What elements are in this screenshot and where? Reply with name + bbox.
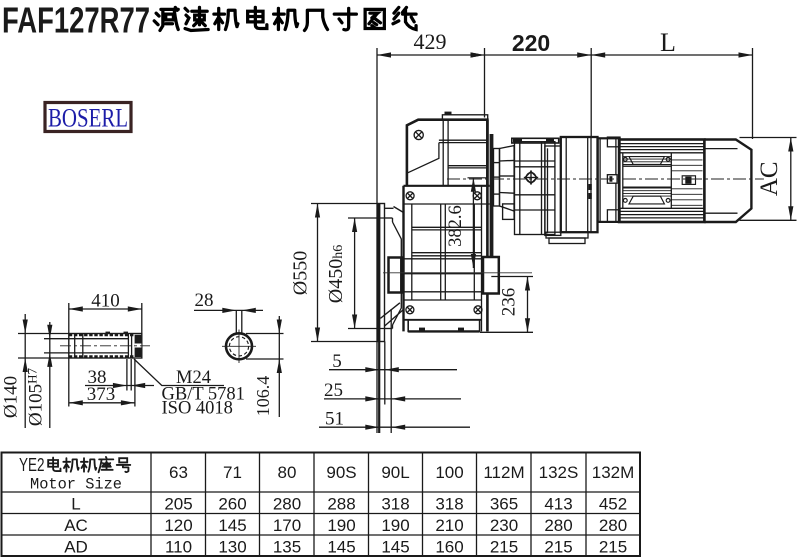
svg-text:130: 130 xyxy=(218,538,246,557)
svg-text:205: 205 xyxy=(164,495,192,514)
svg-text:132M: 132M xyxy=(592,463,635,482)
svg-text:280: 280 xyxy=(599,516,627,535)
svg-text:AD: AD xyxy=(64,538,88,557)
svg-text:145: 145 xyxy=(381,538,409,557)
svg-text:YE2: YE2 xyxy=(19,454,45,475)
svg-text:51: 51 xyxy=(325,409,344,430)
svg-text:220: 220 xyxy=(512,30,550,56)
svg-text:90S: 90S xyxy=(326,463,356,482)
svg-text:145: 145 xyxy=(218,516,246,535)
svg-text:Ø140: Ø140 xyxy=(1,376,22,418)
svg-text:429: 429 xyxy=(414,29,447,54)
svg-text:318: 318 xyxy=(381,495,409,514)
svg-text:BOSERL: BOSERL xyxy=(48,104,128,133)
svg-text:318: 318 xyxy=(435,495,463,514)
svg-text:413: 413 xyxy=(544,495,572,514)
svg-text:5: 5 xyxy=(332,351,342,372)
svg-text:Ø550: Ø550 xyxy=(290,251,312,295)
svg-text:215: 215 xyxy=(490,538,518,557)
svg-text:L: L xyxy=(660,28,676,57)
svg-text:Motor Size: Motor Size xyxy=(30,476,122,494)
svg-text:215: 215 xyxy=(599,538,627,557)
svg-text:280: 280 xyxy=(544,516,572,535)
svg-text:215: 215 xyxy=(544,538,572,557)
svg-text:110: 110 xyxy=(165,538,192,557)
svg-text:71: 71 xyxy=(223,463,242,482)
svg-text:25: 25 xyxy=(324,380,343,401)
svg-text:132S: 132S xyxy=(539,463,579,482)
svg-text:373: 373 xyxy=(87,384,116,405)
svg-text:452: 452 xyxy=(599,495,627,514)
svg-text:ISO 4018: ISO 4018 xyxy=(162,399,233,419)
svg-text:112M: 112M xyxy=(483,463,524,482)
svg-text:90L: 90L xyxy=(381,463,409,482)
svg-text:120: 120 xyxy=(164,516,192,535)
svg-text:382.6: 382.6 xyxy=(446,205,466,247)
svg-text:288: 288 xyxy=(327,495,355,514)
svg-text:135: 135 xyxy=(273,538,301,557)
svg-text:190: 190 xyxy=(327,516,355,535)
svg-text:230: 230 xyxy=(490,516,518,535)
svg-text:FAF127R77: FAF127R77 xyxy=(2,0,150,41)
svg-text:63: 63 xyxy=(169,463,188,482)
svg-text:260: 260 xyxy=(218,495,246,514)
svg-text:AC: AC xyxy=(64,516,88,535)
svg-text:210: 210 xyxy=(435,516,463,535)
svg-text:80: 80 xyxy=(278,463,297,482)
svg-text:236: 236 xyxy=(499,288,520,317)
svg-text:160: 160 xyxy=(435,538,463,557)
svg-text:410: 410 xyxy=(91,291,120,312)
svg-text:L: L xyxy=(71,495,80,514)
svg-text:170: 170 xyxy=(273,516,301,535)
svg-text:145: 145 xyxy=(327,538,355,557)
svg-text:106.4: 106.4 xyxy=(253,376,273,417)
svg-text:365: 365 xyxy=(490,495,518,514)
svg-text:280: 280 xyxy=(273,495,301,514)
svg-text:190: 190 xyxy=(381,516,409,535)
svg-text:100: 100 xyxy=(435,463,463,482)
svg-text:AC: AC xyxy=(756,161,783,196)
svg-text:28: 28 xyxy=(195,290,214,311)
